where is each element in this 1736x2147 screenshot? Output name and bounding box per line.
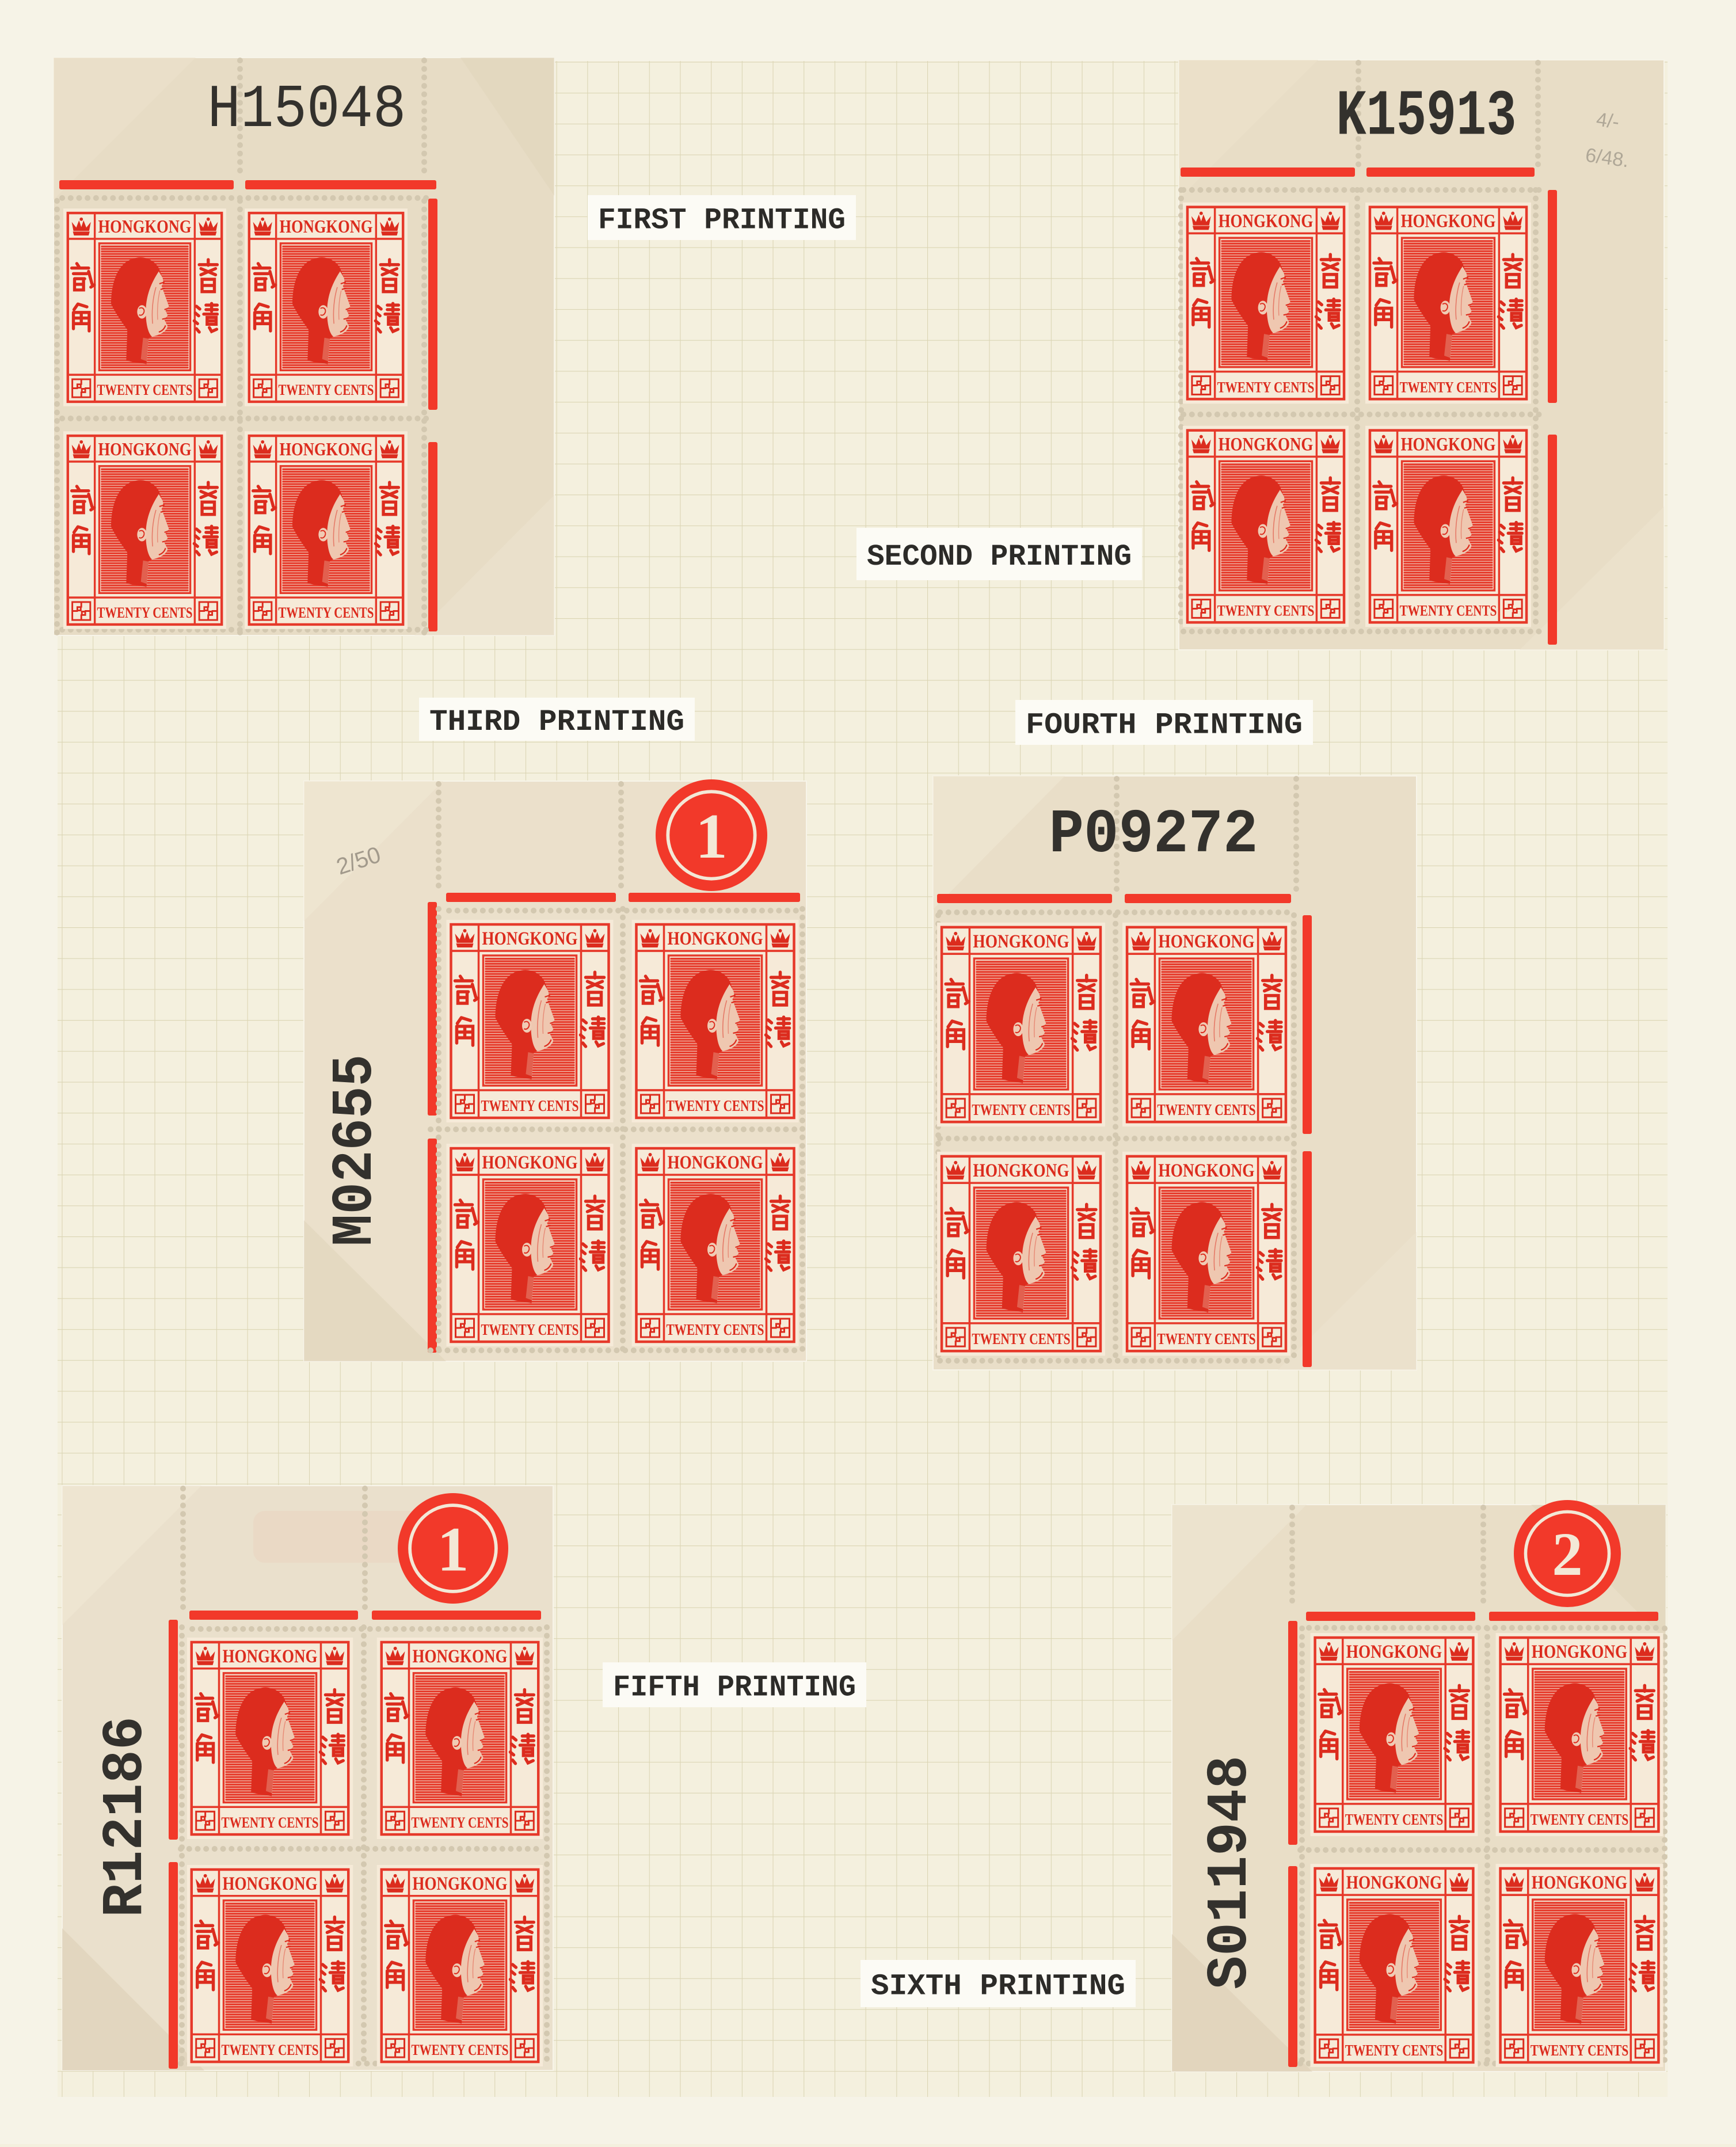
svg-text:THIRD PRINTING: THIRD PRINTING — [429, 705, 684, 739]
svg-text:SIXTH PRINTING: SIXTH PRINTING — [871, 1970, 1125, 2004]
svg-text:FIFTH PRINTING: FIFTH PRINTING — [613, 1671, 856, 1705]
svg-text:S011948: S011948 — [1198, 1756, 1263, 1989]
svg-text:R12186: R12186 — [94, 1716, 159, 1917]
svg-text:P09272: P09272 — [1049, 800, 1258, 870]
svg-text:2: 2 — [1552, 1521, 1582, 1589]
svg-text:FIRST PRINTING: FIRST PRINTING — [598, 204, 846, 238]
svg-text:M02655: M02655 — [323, 1055, 389, 1246]
svg-text:FOURTH PRINTING: FOURTH PRINTING — [1026, 709, 1303, 743]
svg-text:SECOND PRINTING: SECOND PRINTING — [867, 540, 1132, 574]
svg-text:H15048: H15048 — [208, 75, 406, 144]
svg-text:1: 1 — [695, 801, 728, 872]
svg-text:K15913: K15913 — [1337, 80, 1517, 153]
svg-text:1: 1 — [437, 1514, 469, 1584]
svg-text:4/-: 4/- — [1595, 108, 1621, 133]
